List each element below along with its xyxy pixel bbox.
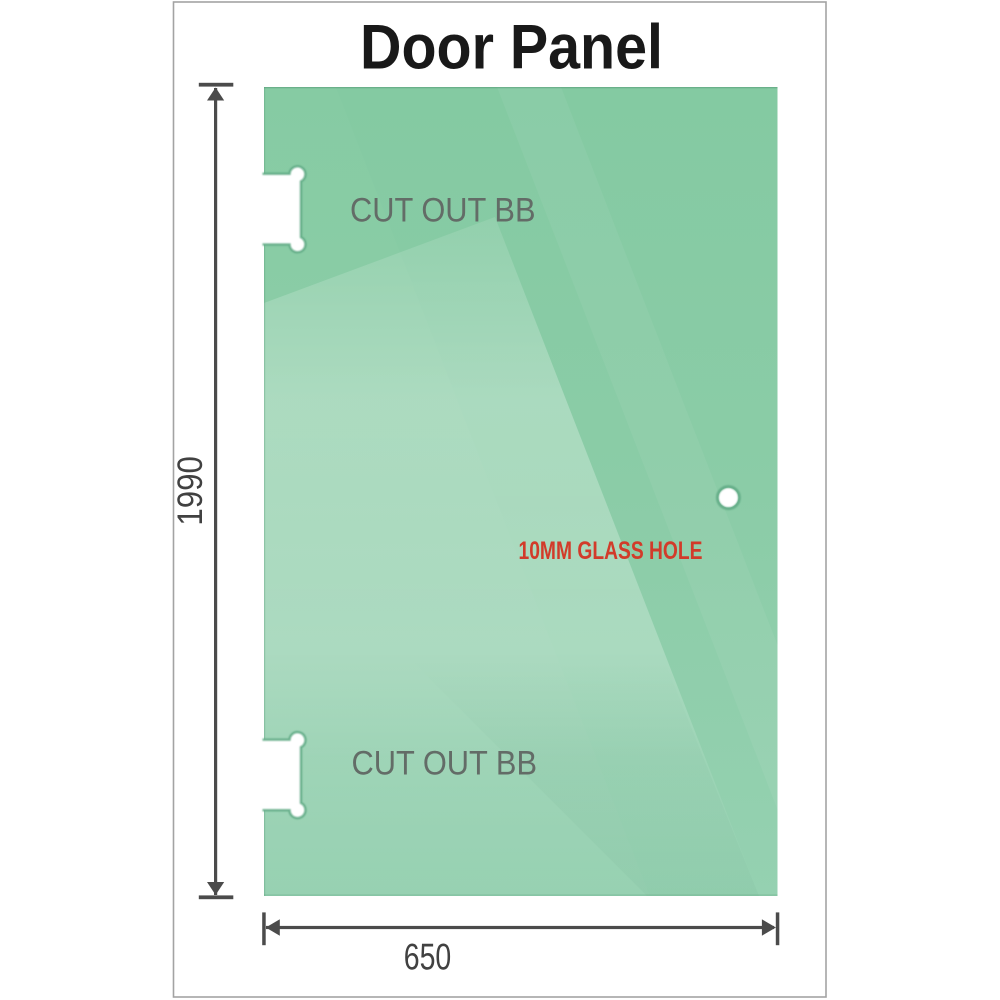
svg-text:650: 650 xyxy=(404,936,452,977)
svg-text:Door Panel: Door Panel xyxy=(360,13,663,83)
svg-text:10MM GLASS HOLE: 10MM GLASS HOLE xyxy=(519,538,703,565)
svg-text:CUT OUT BB: CUT OUT BB xyxy=(352,745,538,783)
svg-text:CUT OUT BB: CUT OUT BB xyxy=(350,191,536,229)
svg-text:1990: 1990 xyxy=(171,456,210,526)
